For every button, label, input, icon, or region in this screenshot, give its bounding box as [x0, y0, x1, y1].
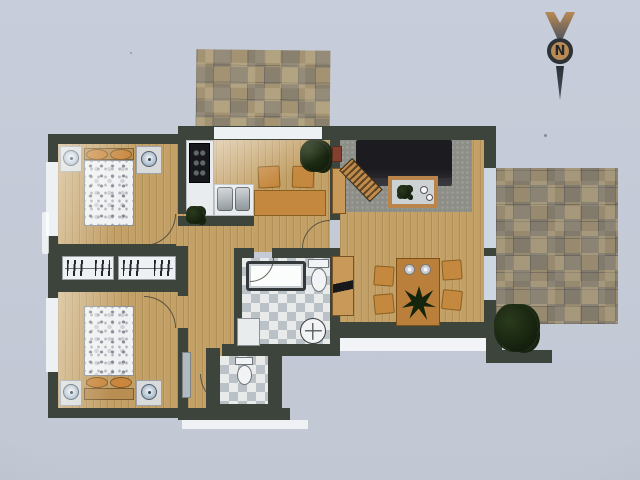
- compass-chevron-icon: [545, 12, 575, 38]
- door-gap: [176, 296, 188, 328]
- plant-icon: [397, 185, 411, 199]
- coffee-table: [388, 176, 438, 208]
- dining-chair: [373, 265, 394, 286]
- wall-shelf: [332, 146, 342, 162]
- dust-speck: [544, 134, 547, 137]
- dining-chair: [441, 259, 462, 280]
- tv-cabinet: [332, 256, 354, 316]
- closet-hanging-clothes: [118, 256, 176, 280]
- plant-icon: [186, 206, 204, 224]
- toilet-tank: [235, 357, 253, 365]
- dining-chair: [373, 293, 395, 315]
- radiator: [182, 352, 191, 398]
- place-setting-icon: [420, 264, 431, 275]
- sunlight-overlay: [214, 140, 330, 218]
- terrace-top: [196, 49, 331, 134]
- toilet-bowl: [237, 365, 252, 385]
- closet-hanging-clothes: [62, 256, 114, 280]
- window: [484, 168, 496, 248]
- dining-chair: [441, 289, 463, 311]
- bath-cabinet: [237, 318, 260, 346]
- floor-plan-photo: N: [0, 0, 640, 480]
- window: [46, 298, 58, 372]
- closet-rail: [121, 268, 174, 269]
- photo-highlight: [42, 212, 49, 254]
- north-arrow: N: [543, 12, 577, 100]
- compass-tail-icon: [556, 66, 564, 100]
- cup-icon: [420, 186, 428, 194]
- compass-letter: N: [555, 45, 566, 58]
- washbasin-icon: [300, 318, 326, 344]
- window: [484, 256, 496, 300]
- dust-speck: [130, 52, 132, 54]
- closet-rail: [65, 268, 112, 269]
- toilet-tank: [308, 259, 329, 268]
- cup-icon: [426, 194, 433, 201]
- compass-circle: N: [547, 38, 573, 64]
- bathroom-top-wall: [234, 248, 254, 258]
- place-setting-icon: [404, 264, 415, 275]
- photo-highlight: [340, 338, 486, 351]
- living-top-wall: [340, 126, 496, 140]
- wc-bottom-wall: [206, 404, 282, 416]
- terrace-right: [496, 168, 618, 324]
- stove-icon: [189, 143, 210, 183]
- toilet-bowl: [311, 268, 327, 292]
- photo-highlight: [182, 420, 308, 429]
- kitchen-window: [214, 127, 322, 139]
